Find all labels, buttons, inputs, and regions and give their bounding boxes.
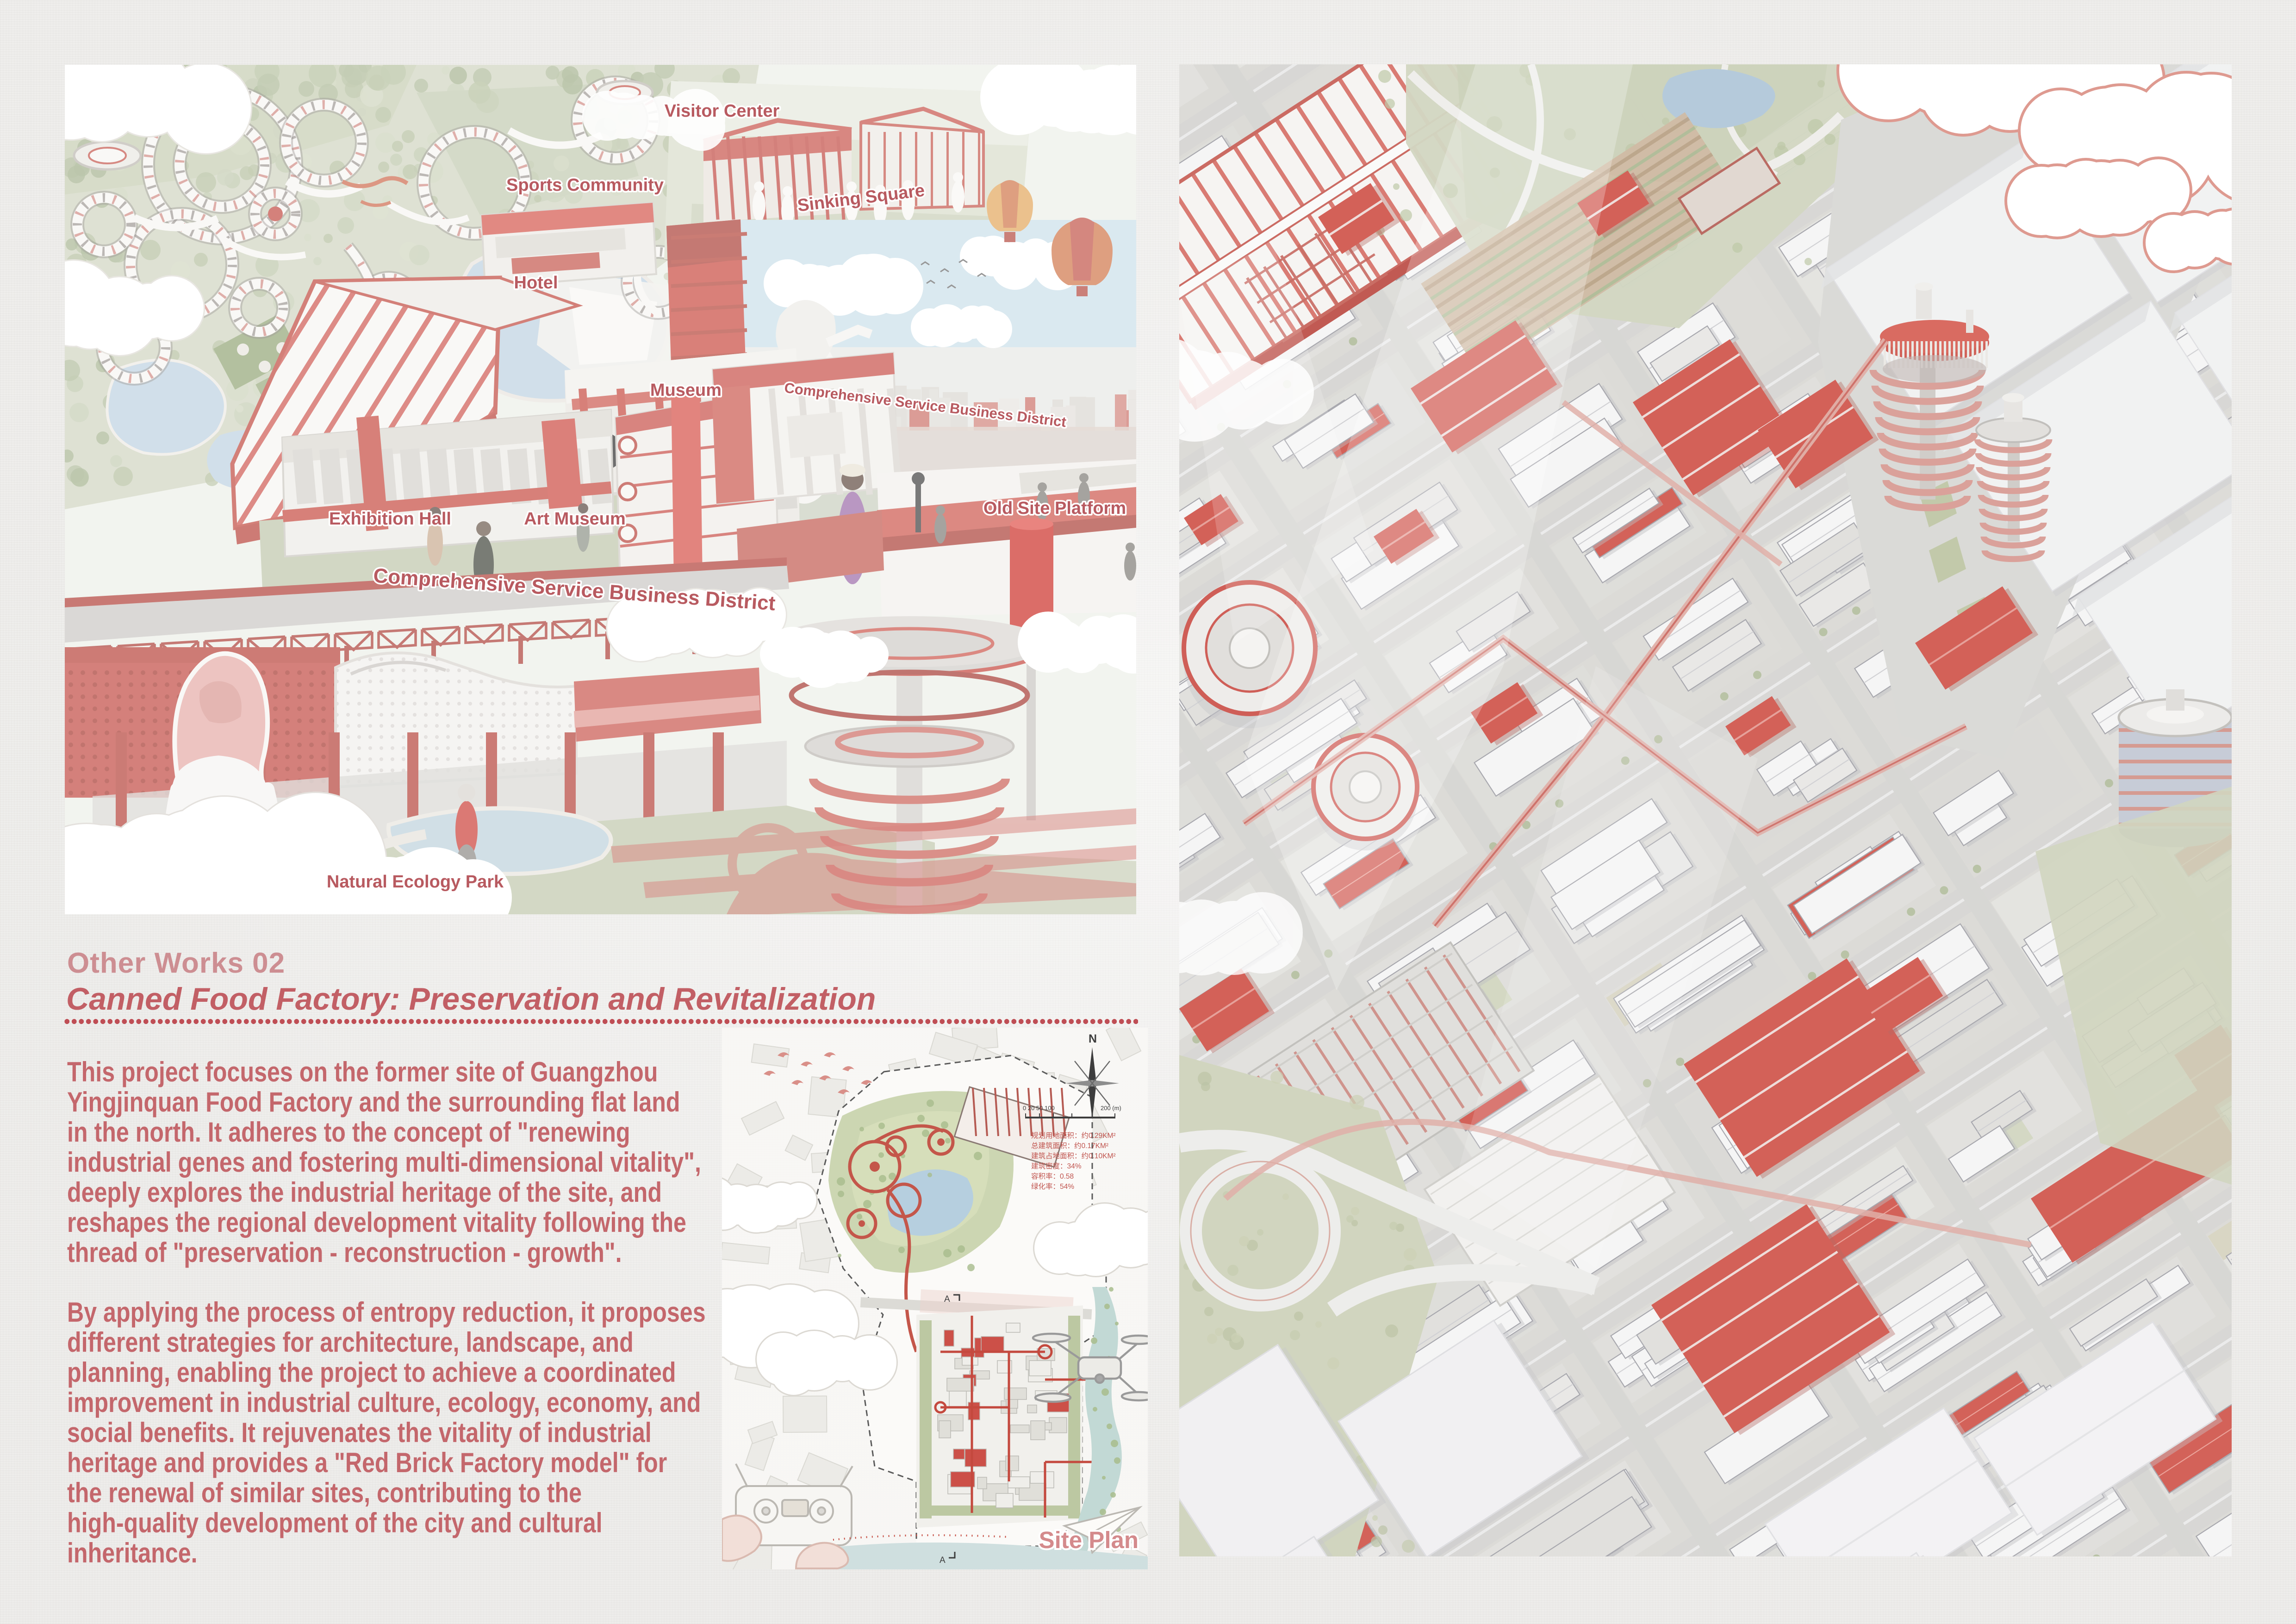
svg-text:Museum: Museum xyxy=(650,381,722,400)
svg-text:总建筑面积：约0.17KM²: 总建筑面积：约0.17KM² xyxy=(1031,1142,1108,1150)
svg-text:Hotel: Hotel xyxy=(514,273,558,293)
svg-text:建筑密度：34%: 建筑密度：34% xyxy=(1031,1162,1082,1170)
svg-text:0 20 50 100: 0 20 50 100 xyxy=(1023,1105,1055,1112)
svg-text:Art Museum: Art Museum xyxy=(524,509,626,529)
svg-text:规划用地面积：约0.29KM²: 规划用地面积：约0.29KM² xyxy=(1031,1131,1116,1140)
svg-text:Exhibition Hall: Exhibition Hall xyxy=(329,509,451,529)
svg-text:Site Plan: Site Plan xyxy=(1039,1527,1139,1553)
svg-text:绿化率：54%: 绿化率：54% xyxy=(1031,1182,1074,1191)
svg-text:N: N xyxy=(1089,1032,1097,1045)
svg-text:Old Site Platform: Old Site Platform xyxy=(983,499,1126,518)
svg-text:Natural Ecology Park: Natural Ecology Park xyxy=(327,872,504,892)
svg-text:Visitor Center: Visitor Center xyxy=(665,101,780,121)
svg-text:容积率：0.58: 容积率：0.58 xyxy=(1031,1172,1074,1181)
svg-text:200 (m): 200 (m) xyxy=(1101,1105,1121,1112)
svg-text:Sports Community: Sports Community xyxy=(506,175,664,195)
svg-text:建筑占地面积：约0.10KM²: 建筑占地面积：约0.10KM² xyxy=(1031,1152,1116,1160)
